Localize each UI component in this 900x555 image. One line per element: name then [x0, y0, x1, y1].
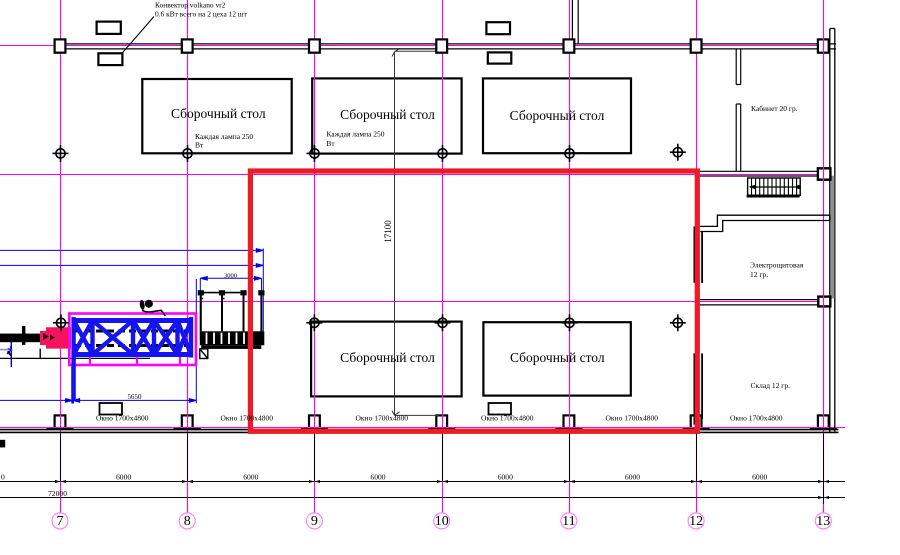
svg-text:Каждая лампа 250: Каждая лампа 250 [195, 132, 253, 141]
svg-text:6000: 6000 [370, 473, 385, 482]
svg-text:Окно 1700х4800: Окно 1700х4800 [356, 414, 409, 423]
svg-text:Склад 12 гр.: Склад 12 гр. [751, 381, 791, 390]
svg-text:Конвектор volkano vr2: Конвектор volkano vr2 [155, 0, 226, 9]
svg-text:10: 10 [435, 514, 449, 529]
svg-text:72000: 72000 [48, 489, 67, 498]
svg-text:Вт: Вт [195, 140, 204, 149]
svg-text:6000: 6000 [625, 473, 640, 482]
svg-text:0: 0 [1, 473, 5, 482]
svg-text:13: 13 [816, 514, 830, 529]
svg-text:12: 12 [689, 514, 703, 529]
svg-text:Окно 1700х4800: Окно 1700х4800 [481, 414, 534, 423]
svg-text:6000: 6000 [243, 473, 258, 482]
svg-text:Окно 1700х4800: Окно 1700х4800 [730, 414, 783, 423]
svg-text:Сборочный стол: Сборочный стол [510, 350, 605, 365]
svg-text:11: 11 [562, 514, 575, 529]
svg-text:Электрощитовая: Электрощитовая [750, 261, 804, 270]
svg-text:8: 8 [184, 514, 191, 529]
svg-text:6000: 6000 [498, 473, 513, 482]
svg-text:0.6 кВт всего на 2 цеха 12 шт: 0.6 кВт всего на 2 цеха 12 шт [155, 10, 248, 19]
svg-text:Сборочный стол: Сборочный стол [171, 106, 266, 121]
svg-text:Сборочный стол: Сборочный стол [340, 107, 435, 122]
svg-text:Сборочный стол: Сборочный стол [510, 108, 605, 123]
svg-text:12 гр.: 12 гр. [750, 270, 768, 279]
svg-text:Окно 1700х4800: Окно 1700х4800 [221, 414, 274, 423]
svg-text:17100: 17100 [383, 220, 393, 243]
svg-text:5650: 5650 [128, 393, 143, 401]
svg-text:3000: 3000 [224, 273, 237, 280]
svg-text:Кабинет 20 гр.: Кабинет 20 гр. [751, 104, 798, 113]
svg-text:Каждая лампа 250: Каждая лампа 250 [326, 130, 384, 139]
svg-text:Окно 1700х4800: Окно 1700х4800 [96, 414, 149, 423]
svg-text:Сборочный стол: Сборочный стол [340, 350, 435, 365]
svg-text:9: 9 [311, 514, 318, 529]
svg-text:6000: 6000 [752, 473, 767, 482]
svg-text:Вт: Вт [326, 139, 335, 148]
svg-text:7: 7 [57, 514, 64, 529]
svg-text:Окно 1700х4800: Окно 1700х4800 [606, 414, 659, 423]
svg-text:6000: 6000 [116, 473, 131, 482]
